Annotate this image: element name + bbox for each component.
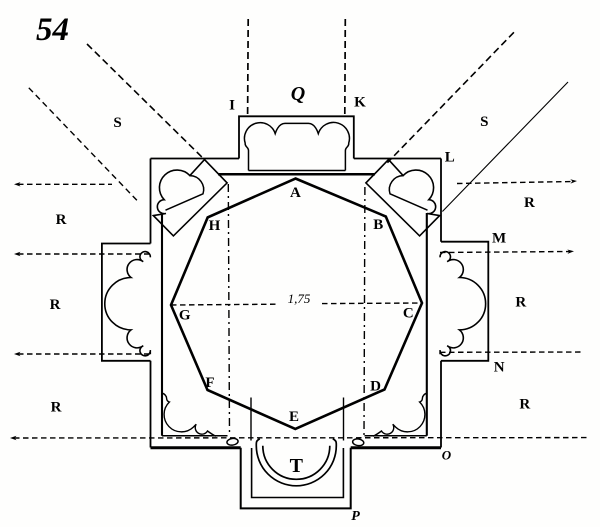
svg-text:1,75: 1,75 <box>288 291 311 306</box>
svg-text:I: I <box>229 98 235 114</box>
svg-text:G: G <box>179 308 191 324</box>
svg-text:R: R <box>50 297 61 313</box>
svg-text:S: S <box>113 115 121 131</box>
svg-text:A: A <box>290 185 301 201</box>
svg-text:R: R <box>51 400 62 416</box>
svg-text:R: R <box>524 195 535 211</box>
svg-text:R: R <box>56 212 67 228</box>
svg-text:S: S <box>480 114 488 130</box>
svg-text:T: T <box>290 455 304 477</box>
svg-text:H: H <box>209 218 221 234</box>
svg-text:R: R <box>515 295 526 311</box>
svg-text:M: M <box>492 231 506 247</box>
svg-text:P: P <box>351 509 360 524</box>
svg-text:E: E <box>289 409 299 425</box>
svg-text:O: O <box>442 447 452 462</box>
svg-text:N: N <box>494 360 505 376</box>
svg-text:54: 54 <box>36 12 69 48</box>
svg-text:L: L <box>445 150 455 166</box>
svg-text:K: K <box>354 95 366 111</box>
svg-text:F: F <box>205 375 214 391</box>
svg-text:R: R <box>519 397 530 413</box>
svg-text:Q: Q <box>291 83 305 105</box>
svg-text:B: B <box>373 217 383 233</box>
svg-text:C: C <box>403 306 414 322</box>
svg-text:D: D <box>370 378 381 394</box>
